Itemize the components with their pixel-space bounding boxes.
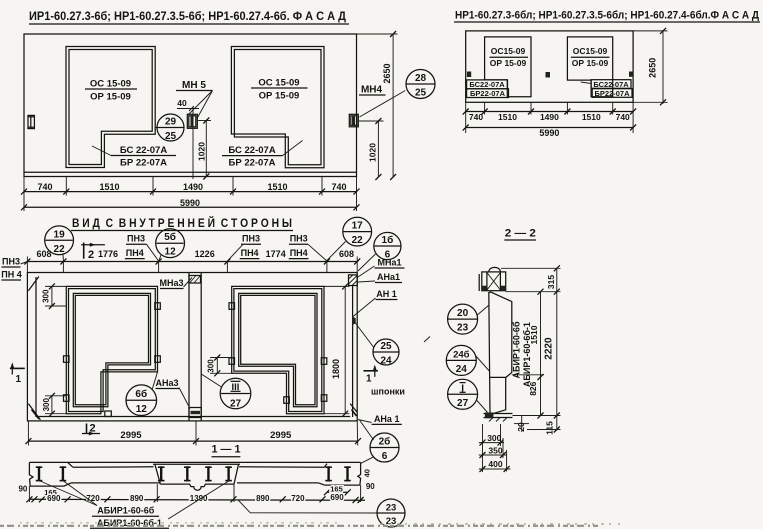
svg-text:ПН4: ПН4 <box>290 248 308 258</box>
svg-text:БС 22-07А: БС 22-07А <box>120 145 168 156</box>
svg-text:ОС15-09: ОС15-09 <box>573 46 608 56</box>
svg-text:1226: 1226 <box>195 249 215 259</box>
svg-text:690: 690 <box>47 494 61 503</box>
svg-text:1: 1 <box>366 374 372 385</box>
svg-text:АНа 1: АНа 1 <box>374 414 400 424</box>
svg-text:90: 90 <box>366 482 375 491</box>
svg-text:25: 25 <box>415 88 427 99</box>
svg-text:12: 12 <box>165 247 177 258</box>
svg-text:МНа3: МНа3 <box>159 278 183 288</box>
svg-text:МНа1: МНа1 <box>377 258 401 268</box>
svg-text:2 — 2: 2 — 2 <box>505 228 536 240</box>
svg-text:БС22-07А: БС22-07А <box>469 80 505 89</box>
svg-text:115: 115 <box>545 421 555 435</box>
svg-text:шпонки: шпонки <box>371 387 405 397</box>
svg-text:826: 826 <box>528 381 538 395</box>
svg-text:23: 23 <box>386 503 397 514</box>
svg-text:23: 23 <box>457 323 469 334</box>
svg-text:ОС 15-09: ОС 15-09 <box>90 79 131 90</box>
svg-text:300: 300 <box>42 397 51 411</box>
svg-text:ИР1-60.27.3-6б; НР1-60.27.3.5-: ИР1-60.27.3-6б; НР1-60.27.3.5-6б; НР1-60… <box>29 9 346 23</box>
svg-text:ОС15-09: ОС15-09 <box>491 46 526 56</box>
svg-text:608: 608 <box>339 249 354 259</box>
svg-text:АНа3: АНа3 <box>155 378 178 388</box>
svg-text:ОР 15-09: ОР 15-09 <box>259 91 300 102</box>
svg-text:12: 12 <box>136 404 148 415</box>
svg-text:ПН3: ПН3 <box>127 234 145 244</box>
svg-text:БР22-07А: БР22-07А <box>595 89 631 98</box>
svg-text:АН 1: АН 1 <box>376 289 397 299</box>
svg-text:40: 40 <box>363 469 372 477</box>
svg-text:1774: 1774 <box>266 249 286 259</box>
svg-text:2995: 2995 <box>270 430 292 441</box>
svg-text:ОР 15-09: ОР 15-09 <box>490 58 527 68</box>
svg-text:2220: 2220 <box>544 337 555 360</box>
svg-text:6: 6 <box>382 451 388 462</box>
svg-text:90: 90 <box>18 485 27 494</box>
svg-text:22: 22 <box>54 244 66 255</box>
svg-text:БР 22-07А: БР 22-07А <box>120 158 167 169</box>
svg-text:740: 740 <box>616 112 630 122</box>
svg-text:АБИР1-60-6б: АБИР1-60-6б <box>97 506 154 516</box>
svg-text:АБИР1-60-6б: АБИР1-60-6б <box>512 321 522 378</box>
svg-text:1020: 1020 <box>196 142 206 161</box>
svg-text:28: 28 <box>415 73 427 84</box>
svg-text:1510: 1510 <box>267 182 287 192</box>
svg-text:27: 27 <box>457 398 469 409</box>
svg-text:2650: 2650 <box>648 58 658 78</box>
svg-text:ОР 15-09: ОР 15-09 <box>572 58 609 68</box>
svg-text:1800: 1800 <box>331 359 341 379</box>
svg-text:300: 300 <box>487 433 501 443</box>
svg-text:ПН4: ПН4 <box>126 248 144 258</box>
svg-text:МН4: МН4 <box>361 85 383 96</box>
svg-text:5б: 5б <box>164 231 176 243</box>
svg-text:400: 400 <box>488 459 502 469</box>
svg-text:27: 27 <box>230 399 242 410</box>
svg-text:1490: 1490 <box>540 112 559 122</box>
svg-text:24б: 24б <box>453 349 470 360</box>
svg-text:2995: 2995 <box>120 430 142 441</box>
svg-text:1б: 1б <box>382 234 394 246</box>
svg-text:1510: 1510 <box>529 325 539 344</box>
svg-text:ПН3: ПН3 <box>242 234 260 244</box>
svg-text:17: 17 <box>352 221 364 232</box>
svg-text:690: 690 <box>330 493 344 502</box>
svg-text:5990: 5990 <box>180 198 200 208</box>
svg-text:2650: 2650 <box>382 63 392 83</box>
svg-text:350: 350 <box>488 445 502 455</box>
svg-text:ПН 4: ПН 4 <box>1 270 21 280</box>
svg-text:1 — 1: 1 — 1 <box>212 444 241 456</box>
svg-text:890: 890 <box>256 494 270 503</box>
svg-text:720: 720 <box>291 494 305 503</box>
svg-text:В И Д С В Н У Т Р Е Н Н Е Й: В И Д С В Н У Т Р Е Н Н Е Й С Т О Р О Н … <box>72 215 292 230</box>
svg-text:ПН3: ПН3 <box>2 257 20 267</box>
svg-text:740: 740 <box>37 182 52 192</box>
svg-text:29: 29 <box>165 117 177 128</box>
svg-text:МН 5: МН 5 <box>182 80 206 91</box>
svg-text:300: 300 <box>42 289 51 303</box>
svg-text:ПН3: ПН3 <box>290 234 308 244</box>
svg-text:22: 22 <box>352 235 364 246</box>
svg-text:2б: 2б <box>379 436 391 448</box>
svg-text:БС22-07А: БС22-07А <box>593 80 629 89</box>
svg-text:ПН4: ПН4 <box>241 248 259 258</box>
svg-text:25: 25 <box>165 131 177 142</box>
svg-text:БР22-07А: БР22-07А <box>470 89 506 98</box>
svg-text:19: 19 <box>54 229 66 240</box>
svg-text:890: 890 <box>130 494 144 503</box>
svg-text:1776: 1776 <box>98 249 118 259</box>
svg-text:40: 40 <box>177 98 187 108</box>
svg-text:1020: 1020 <box>368 143 378 162</box>
svg-text:740: 740 <box>331 182 346 192</box>
svg-text:ОР 15-09: ОР 15-09 <box>90 92 131 103</box>
svg-text:24: 24 <box>380 355 392 366</box>
svg-text:20: 20 <box>457 308 469 319</box>
svg-text:1510: 1510 <box>498 112 517 122</box>
svg-text:НР1-60.27.3-6бл; НР1-60.27.3.5: НР1-60.27.3-6бл; НР1-60.27.3.5-6бл; НР1-… <box>455 10 759 22</box>
svg-text:1: 1 <box>16 374 22 385</box>
svg-text:300: 300 <box>207 359 216 373</box>
svg-text:6б: 6б <box>135 388 147 400</box>
svg-text:2: 2 <box>88 249 94 261</box>
svg-text:БР 22-07А: БР 22-07А <box>229 158 276 169</box>
svg-text:1510: 1510 <box>99 182 119 192</box>
svg-text:ОС 15-09: ОС 15-09 <box>258 78 299 89</box>
svg-text:24: 24 <box>456 364 468 375</box>
svg-text:25: 25 <box>380 341 392 352</box>
svg-text:БС 22-07А: БС 22-07А <box>228 145 276 156</box>
svg-text:740: 740 <box>469 112 483 122</box>
svg-text:1510: 1510 <box>582 112 601 122</box>
svg-text:5990: 5990 <box>539 128 559 138</box>
svg-text:1490: 1490 <box>183 182 203 192</box>
svg-text:АНа1: АНа1 <box>377 272 400 282</box>
svg-text:315: 315 <box>546 275 556 289</box>
